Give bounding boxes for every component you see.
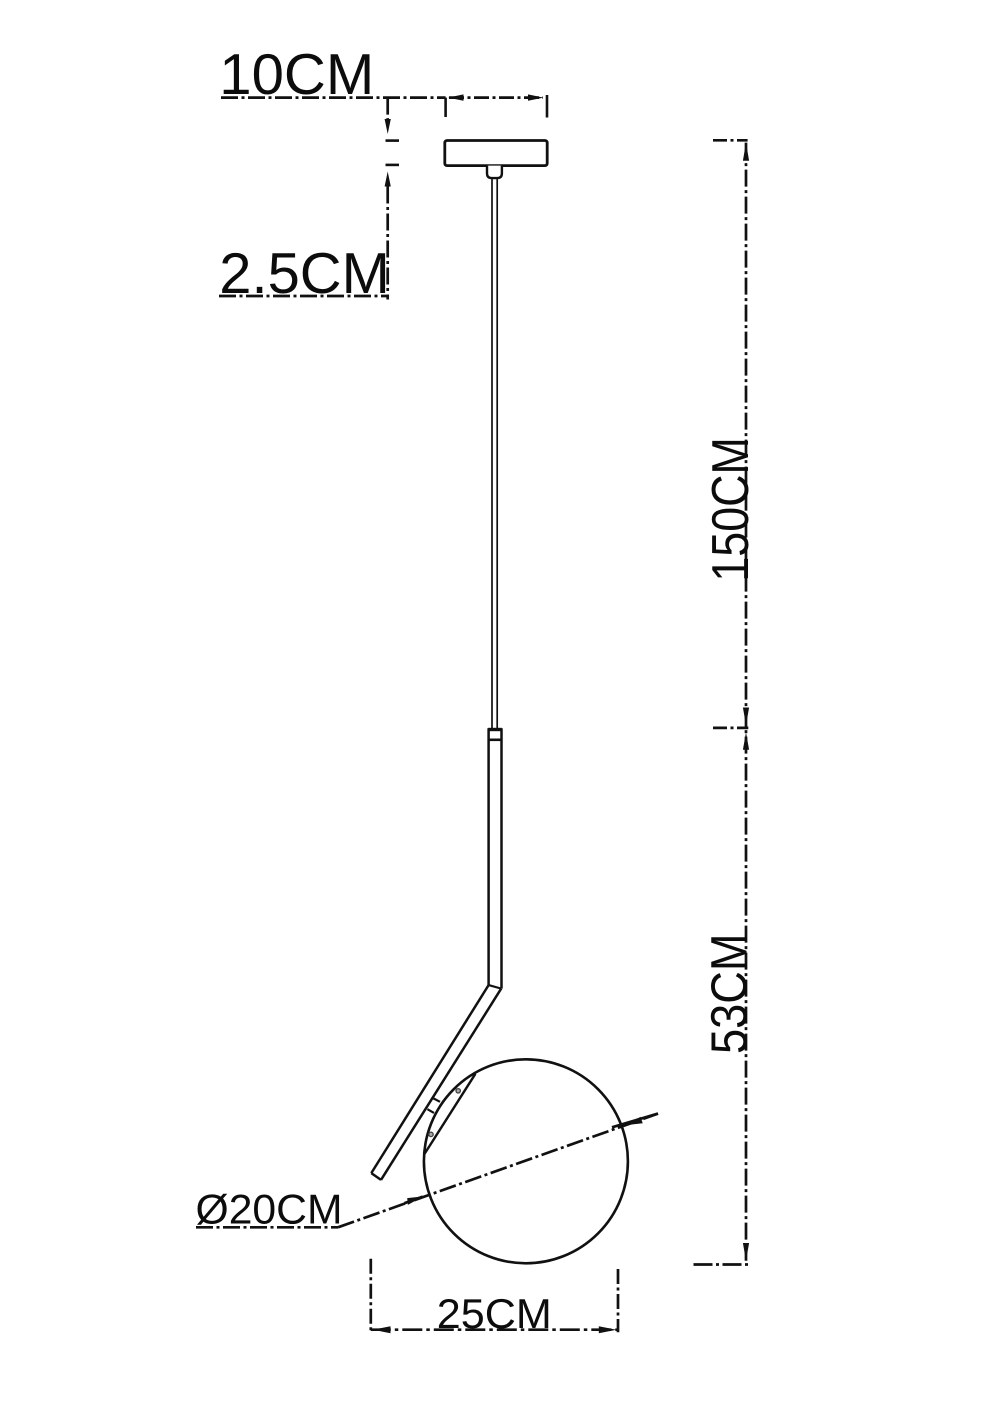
svg-text:25CM: 25CM [437,1290,552,1337]
svg-text:10CM: 10CM [219,43,374,107]
svg-text:Ø20CM: Ø20CM [196,1186,343,1233]
svg-text:2.5CM: 2.5CM [219,242,389,306]
svg-text:150CM: 150CM [701,437,759,582]
svg-text:53CM: 53CM [700,933,757,1053]
